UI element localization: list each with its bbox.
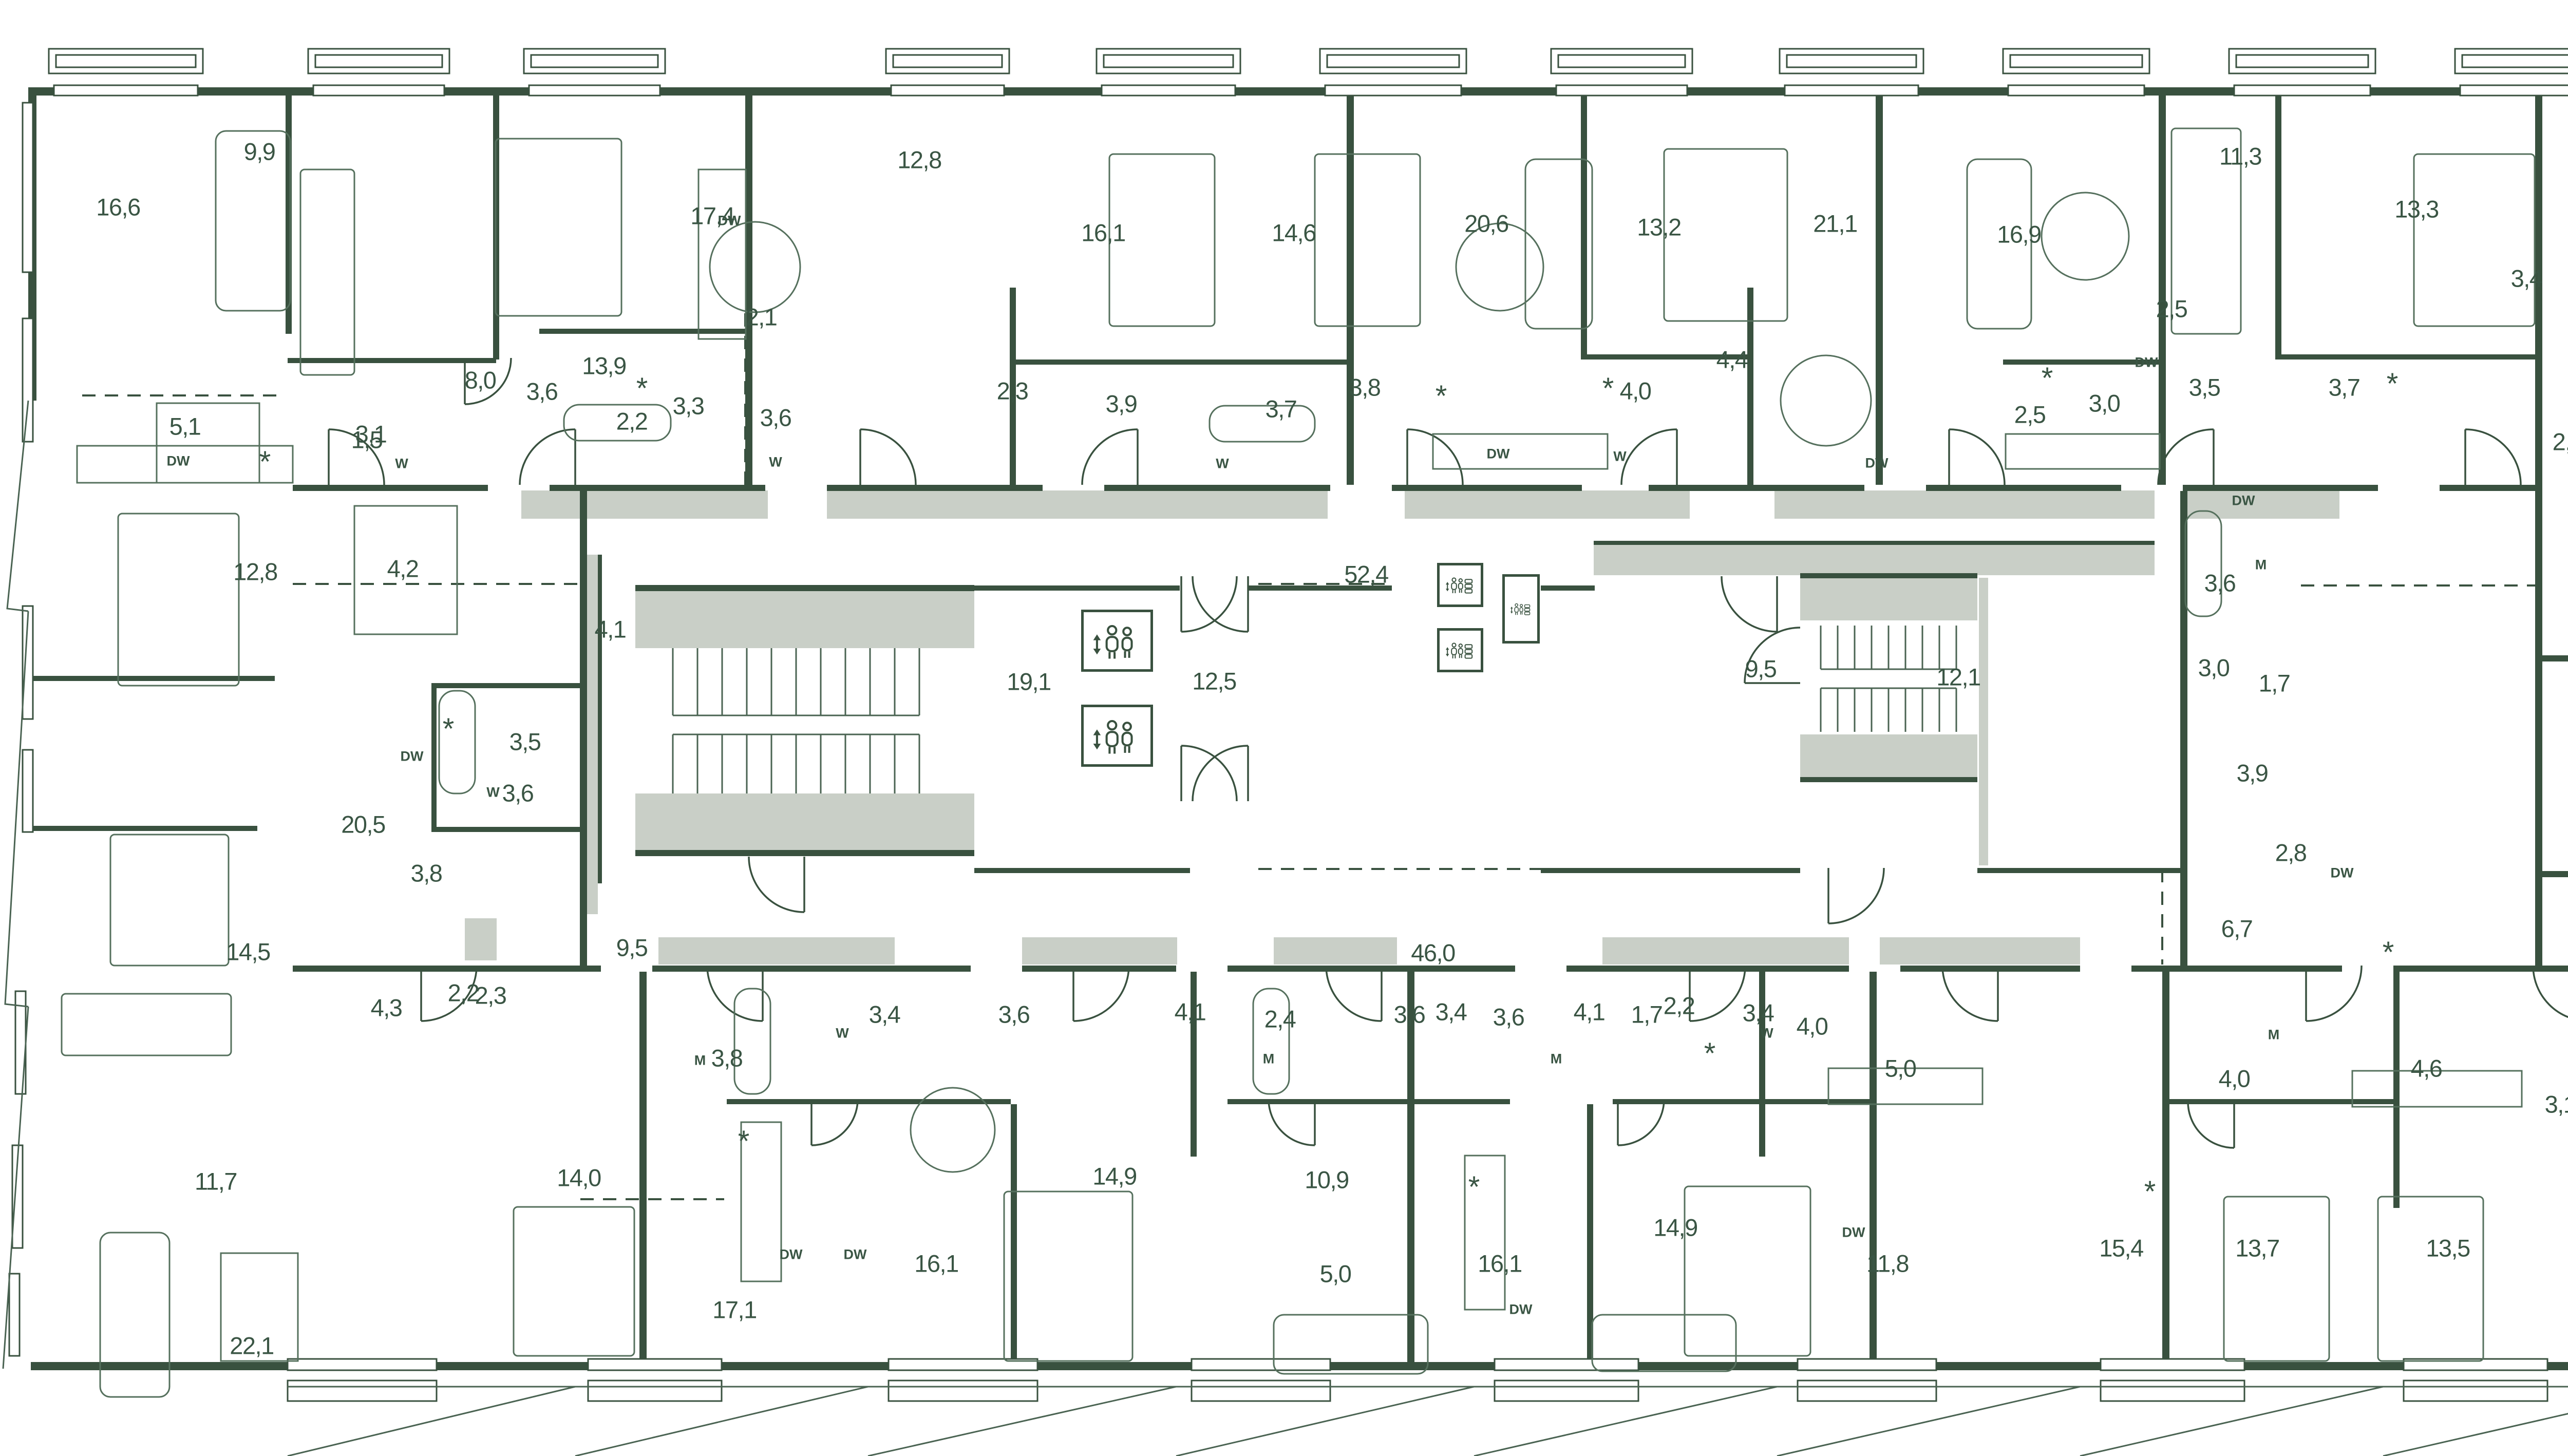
door-swings xyxy=(329,358,2568,1148)
area-label: 4,4 xyxy=(1716,348,1748,372)
area-label: 3,6 xyxy=(526,380,558,404)
area-label: 3,0 xyxy=(2089,391,2120,415)
bed-icon xyxy=(1109,154,1215,326)
area-label: 3,4 xyxy=(869,1003,900,1027)
fridge-icon: * xyxy=(1704,1039,1716,1069)
area-label: 12,5 xyxy=(1192,669,1236,693)
w-icon: W xyxy=(836,1027,848,1041)
fridge-icon: * xyxy=(259,447,271,477)
area-label: 3,6 xyxy=(998,1003,1030,1027)
elevator-passenger-icon xyxy=(1088,616,1146,665)
bed-icon xyxy=(118,514,239,686)
area-label: 11,7 xyxy=(195,1169,237,1194)
area-label: 15,4 xyxy=(2099,1236,2143,1260)
area-label: 5,0 xyxy=(1885,1056,1916,1081)
area-label: 10,9 xyxy=(1305,1168,1348,1192)
fridge-icon: * xyxy=(1436,382,1447,411)
w-icon: W xyxy=(769,456,782,469)
elevator-freight-icon xyxy=(1444,635,1477,666)
area-label: 1,7 xyxy=(1631,1003,1663,1027)
area-label: 3,8 xyxy=(711,1046,743,1070)
area-label: 3,8 xyxy=(1349,375,1381,400)
area-label: 2,2 xyxy=(448,981,479,1005)
area-label: 3,4 xyxy=(1436,1000,1467,1024)
area-label: 16,6 xyxy=(96,195,140,219)
bed-icon xyxy=(2378,1197,2483,1361)
m-icon: M xyxy=(1263,1052,1275,1066)
dw-icon: DW xyxy=(844,1248,867,1262)
area-label: 4,0 xyxy=(1797,1014,1828,1038)
area-label: 16,9 xyxy=(1997,222,2041,247)
dw-icon: DW xyxy=(1509,1303,1533,1317)
fridge-icon: * xyxy=(2383,938,2394,968)
furniture xyxy=(62,128,2568,1397)
area-label: 20,6 xyxy=(1464,212,1508,236)
bed-icon xyxy=(62,994,231,1055)
fridge-icon: * xyxy=(2042,364,2053,393)
area-label: 14,9 xyxy=(1653,1216,1697,1240)
bed-icon xyxy=(1004,1192,1132,1361)
floor-plan: 16,69,91,513,98,05,13,117,43,62,23,32,13… xyxy=(0,0,2568,1456)
area-label: 12,1 xyxy=(1936,665,1980,689)
blueprint-drawing xyxy=(0,0,2568,1456)
area-label: 3,5 xyxy=(2189,375,2220,400)
bed-icon xyxy=(496,139,621,316)
area-label: 4,0 xyxy=(1620,379,1651,403)
area-label: 11,8 xyxy=(1866,1252,1909,1276)
area-label: 13,5 xyxy=(2426,1236,2469,1260)
w-icon: W xyxy=(486,786,499,800)
area-label: 4,0 xyxy=(2219,1067,2250,1091)
w-icon: W xyxy=(395,457,408,471)
bed-icon xyxy=(1315,154,1420,326)
elevator-freight-icon xyxy=(1444,570,1477,600)
area-label: 4,1 xyxy=(1175,1000,1206,1024)
area-label: 2,1 xyxy=(746,305,777,329)
bed-icon xyxy=(2224,1197,2329,1361)
area-label: 3,9 xyxy=(2237,761,2268,785)
area-label: 2,5 xyxy=(2014,403,2046,427)
sofa-icon xyxy=(100,1233,169,1397)
area-label: 13,2 xyxy=(1637,215,1680,239)
dining-table-icon xyxy=(2042,193,2129,280)
bed-icon xyxy=(1685,1186,1810,1356)
area-label: 11,3 xyxy=(2219,144,2261,168)
area-label: 16,1 xyxy=(1478,1252,1521,1276)
area-label: 2,4 xyxy=(1264,1007,1296,1031)
bathtub-icon xyxy=(1253,989,1289,1094)
area-label: 16,1 xyxy=(1081,221,1125,245)
area-label: 3,0 xyxy=(2198,656,2230,680)
area-label: 46,0 xyxy=(1411,941,1455,965)
area-label: 2,2 xyxy=(616,409,648,433)
kitchen-counter-icon xyxy=(698,169,746,339)
dw-icon: DW xyxy=(2135,356,2158,370)
gray-zones xyxy=(465,490,2339,965)
area-label: 9,9 xyxy=(244,140,275,164)
area-label: 14,9 xyxy=(1092,1164,1136,1188)
dw-icon: DW xyxy=(718,214,741,228)
freight-elevator xyxy=(1502,574,1540,644)
area-label: 4,1 xyxy=(1574,1000,1605,1024)
m-icon: M xyxy=(694,1054,706,1068)
area-label: 2,3 xyxy=(475,984,506,1008)
area-label: 14,6 xyxy=(1272,221,1315,245)
area-label: 2,3 xyxy=(997,379,1028,403)
dw-icon: DW xyxy=(167,455,190,468)
bed-icon xyxy=(514,1207,634,1356)
dw-icon: DW xyxy=(1865,457,1889,470)
m-icon: M xyxy=(1551,1052,1562,1066)
m-icon: M xyxy=(2268,1028,2280,1042)
area-label: 1,7 xyxy=(2259,671,2290,695)
area-label: 13,9 xyxy=(582,354,626,378)
area-label: 5,1 xyxy=(169,414,201,439)
area-label: 12,8 xyxy=(897,148,941,172)
bathtub-icon xyxy=(2185,511,2221,616)
elevator-passenger-icon xyxy=(1088,711,1146,760)
w-icon: W xyxy=(1216,457,1229,471)
dw-icon: DW xyxy=(401,750,424,764)
area-label: 3,6 xyxy=(1394,1003,1425,1027)
area-label: 16,1 xyxy=(914,1252,958,1276)
area-label: 9,5 xyxy=(616,936,648,960)
walls xyxy=(28,87,2568,1370)
dw-icon: DW xyxy=(1842,1226,1865,1240)
freight-elevator xyxy=(1437,628,1483,672)
area-label: 17,1 xyxy=(712,1298,756,1322)
area-label: 8,0 xyxy=(465,368,496,392)
area-label: 3,9 xyxy=(1106,392,1137,416)
area-label: 3,6 xyxy=(1493,1005,1524,1029)
area-label: 3,6 xyxy=(760,406,791,430)
fridge-icon: * xyxy=(636,374,648,404)
bathtub-icon xyxy=(1210,406,1315,442)
bed-icon xyxy=(1664,149,1787,321)
fridge-icon: * xyxy=(738,1127,750,1157)
area-label: 3,1 xyxy=(355,422,387,446)
area-label: 3,7 xyxy=(1266,397,1297,421)
passenger-elevator xyxy=(1081,610,1153,672)
area-label: 2,2 xyxy=(1664,994,1695,1018)
area-label: 3,5 xyxy=(509,730,541,754)
area-label: 4,3 xyxy=(371,996,402,1020)
area-label: 9,5 xyxy=(1745,657,1777,681)
area-label: 14,0 xyxy=(557,1166,600,1190)
fridge-icon: * xyxy=(1602,374,1614,404)
area-label: 3,6 xyxy=(2204,571,2236,595)
bed-icon xyxy=(110,835,229,966)
area-label: 3,8 xyxy=(411,861,442,885)
passenger-elevator xyxy=(1081,705,1153,767)
area-label: 4,1 xyxy=(595,617,626,641)
area-label: 20,5 xyxy=(341,812,385,837)
area-label: 4,6 xyxy=(2411,1056,2442,1081)
area-label: 12,8 xyxy=(233,560,277,584)
area-label: 13,7 xyxy=(2235,1236,2279,1260)
bed-icon xyxy=(300,169,354,375)
area-label: 14,5 xyxy=(226,940,270,964)
area-label: 2,8 xyxy=(2275,841,2307,865)
area-label: 5,0 xyxy=(1320,1262,1351,1286)
kitchen-counter-icon xyxy=(2006,434,2160,469)
area-label: 3,4 xyxy=(1743,1001,1774,1025)
staircase-1-steps xyxy=(673,648,919,793)
fridge-icon: * xyxy=(1468,1173,1480,1202)
dw-icon: DW xyxy=(780,1248,803,1262)
fridge-icon: * xyxy=(2144,1177,2156,1207)
area-label: 52,4 xyxy=(1344,562,1388,587)
area-label: 2,7 xyxy=(2553,430,2568,454)
m-icon: M xyxy=(2255,558,2267,572)
area-label: 19,1 xyxy=(1007,670,1050,694)
dw-icon: DW xyxy=(2232,494,2255,508)
bathtub-icon xyxy=(734,989,770,1094)
fridge-icon: * xyxy=(2387,369,2399,399)
elevator-freight-icon xyxy=(1509,581,1533,637)
w-icon: W xyxy=(1613,450,1626,464)
dining-table-icon xyxy=(1781,355,1871,446)
area-label: 3,1 xyxy=(2545,1092,2568,1117)
area-label: 3,3 xyxy=(673,394,704,418)
area-label: 3,4 xyxy=(2511,267,2542,291)
area-label: 4,2 xyxy=(387,557,419,581)
freight-elevator xyxy=(1437,563,1483,607)
dw-icon: DW xyxy=(2331,866,2354,880)
area-label: 22,1 xyxy=(230,1334,273,1358)
area-label: 3,6 xyxy=(502,781,534,805)
area-label: 21,1 xyxy=(1813,212,1857,236)
w-icon: W xyxy=(1760,1027,1773,1041)
dining-table-icon xyxy=(710,222,800,312)
area-label: 3,7 xyxy=(2329,375,2360,400)
area-label: 13,3 xyxy=(2394,197,2438,221)
area-label: 6,7 xyxy=(2221,917,2253,941)
fridge-icon: * xyxy=(443,714,455,744)
area-label: 2,5 xyxy=(2156,297,2187,321)
dw-icon: DW xyxy=(1487,447,1510,461)
bed-icon xyxy=(2414,154,2535,326)
